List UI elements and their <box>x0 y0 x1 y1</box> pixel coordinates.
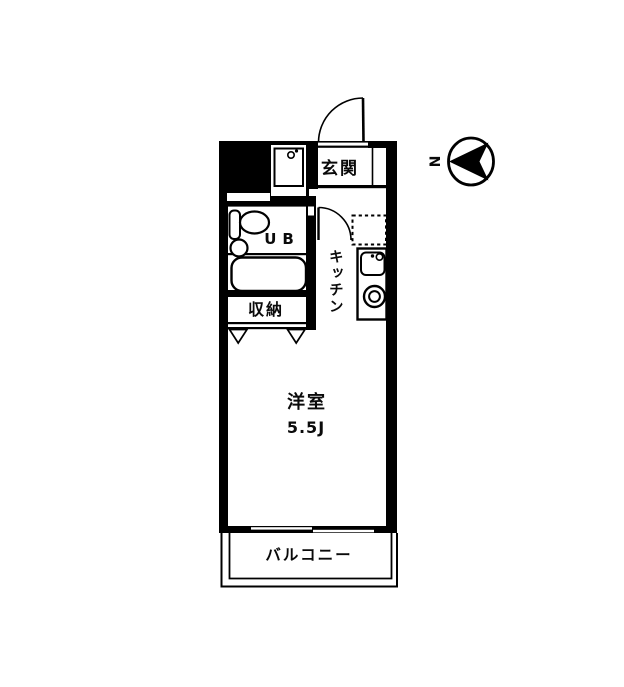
ub-top-line <box>227 204 306 207</box>
storage-label: 収納 <box>238 300 294 320</box>
entrance-door-leaf <box>363 98 364 142</box>
room-size-label: 5.5J <box>275 418 337 437</box>
entrance-sill-line-bottom <box>318 146 368 148</box>
right-wall <box>386 141 397 533</box>
meter-box-dot <box>295 149 298 152</box>
closet-door-triangle-left <box>230 330 248 344</box>
unit-bath-label: UB <box>262 230 302 249</box>
closet-door-triangle-right <box>288 330 306 344</box>
balcony-label: バルコニー <box>252 546 366 566</box>
closet-door-marks <box>230 330 306 344</box>
bathtub <box>232 258 307 292</box>
compass <box>449 138 494 185</box>
meter-box-dial <box>288 152 294 158</box>
kitchen-label: キッチン <box>325 249 344 327</box>
western-room-label: 洋室 <box>275 392 339 413</box>
faucet-dot <box>371 254 374 257</box>
window-slot-lower <box>313 530 374 533</box>
closet-track-line-1 <box>227 322 308 324</box>
refrigerator-space-dashed <box>353 216 387 245</box>
entrance-door <box>318 98 368 148</box>
floor-plan-drawing <box>0 0 624 687</box>
north-label: N <box>425 153 444 171</box>
stove-burner-inner <box>369 291 380 302</box>
ub-door-jamb <box>308 206 315 216</box>
toilet-tank <box>230 211 241 240</box>
kitchen-fixtures <box>353 216 387 320</box>
entrance-label: 玄関 <box>313 158 367 180</box>
ub-door-arc <box>319 208 352 241</box>
ub-door <box>319 208 352 241</box>
window-slot-upper <box>251 527 312 529</box>
entrance-step-line <box>313 185 388 188</box>
unit-bath-fixtures <box>230 211 307 292</box>
faucet-icon <box>376 254 382 260</box>
wash-basin <box>231 240 248 257</box>
floor-plan-page: 玄関 UB キッチン 収納 洋室 5.5J バルコニー N <box>0 0 624 687</box>
entrance-sill-line-top <box>318 141 368 143</box>
entrance-door-arc <box>319 98 364 142</box>
vent-slot <box>227 193 270 201</box>
meter-box <box>271 145 306 196</box>
